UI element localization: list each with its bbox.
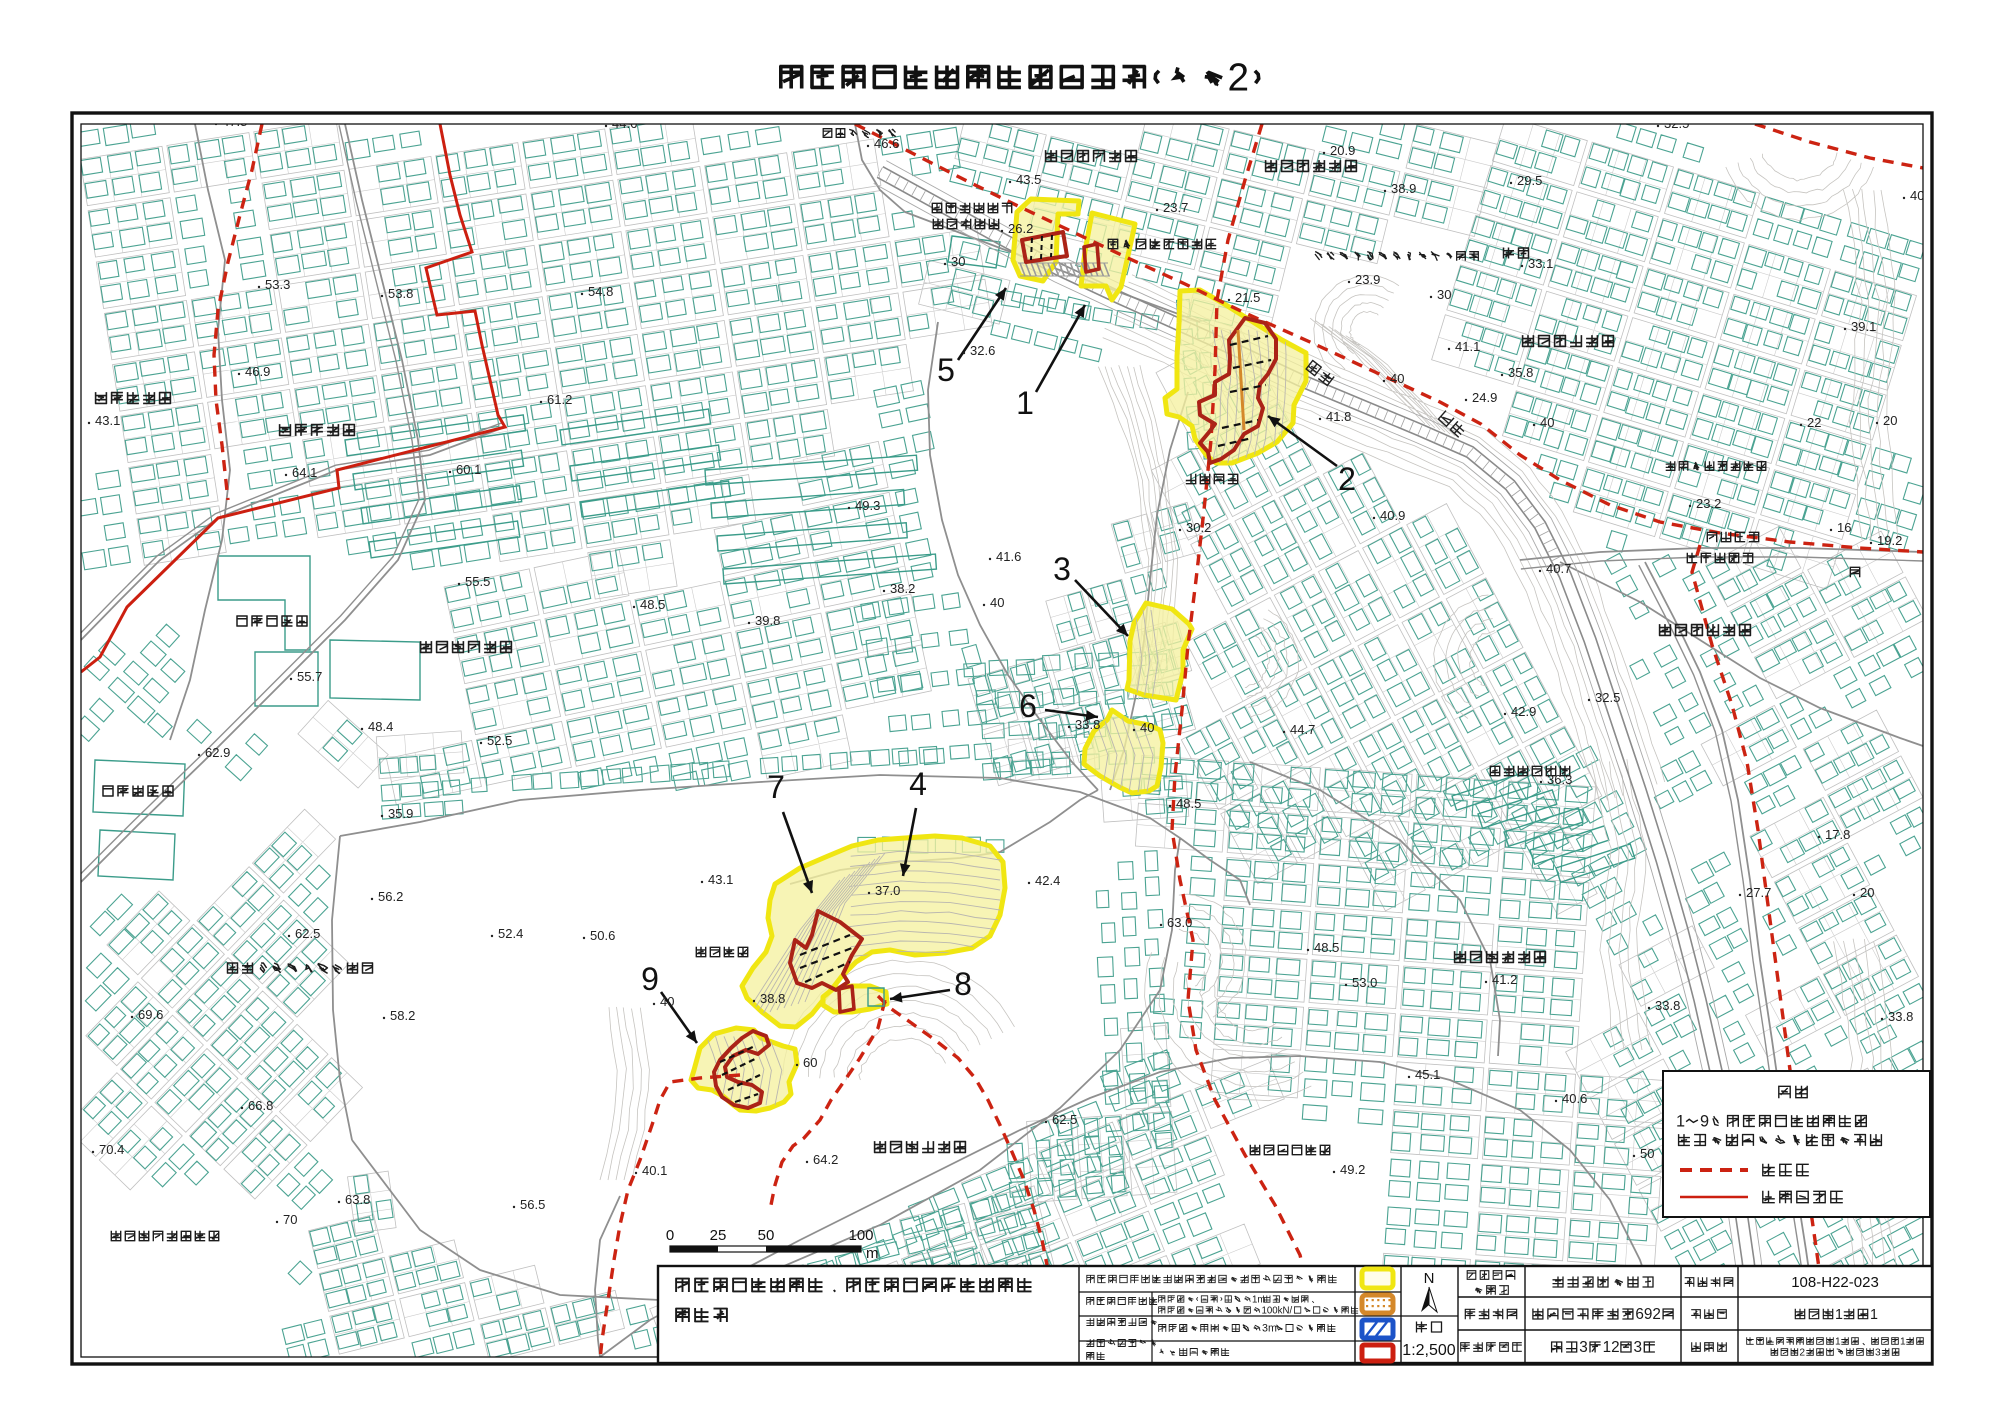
svg-text:52.4: 52.4 [498, 926, 523, 941]
svg-text:3: 3 [1579, 1339, 1588, 1356]
svg-text:43.5: 43.5 [1016, 172, 1041, 187]
svg-text:3: 3 [1053, 551, 1071, 587]
svg-text:40: 40 [1140, 720, 1154, 735]
svg-text:1: 1 [1676, 1113, 1685, 1131]
svg-text:42.9: 42.9 [1511, 704, 1536, 719]
svg-text:1: 1 [1016, 385, 1034, 421]
svg-text:23.7: 23.7 [1163, 200, 1188, 215]
svg-text:2: 2 [1799, 1348, 1805, 1359]
svg-text:38.8: 38.8 [760, 991, 785, 1006]
svg-text:2: 2 [1338, 461, 1356, 497]
svg-text:48.5: 48.5 [1176, 796, 1201, 811]
svg-text:1: 1 [1835, 1307, 1843, 1323]
svg-text:20.9: 20.9 [1330, 143, 1355, 158]
svg-text:35.9: 35.9 [388, 806, 413, 821]
svg-text:43.1: 43.1 [95, 413, 120, 428]
svg-text:70: 70 [283, 1212, 297, 1227]
svg-text:25: 25 [710, 1227, 727, 1244]
svg-text:1: 1 [1835, 1337, 1841, 1348]
svg-text:3: 3 [1634, 1339, 1643, 1356]
svg-text:29.5: 29.5 [1517, 173, 1542, 188]
svg-text:58.2: 58.2 [390, 1008, 415, 1023]
svg-text:52.5: 52.5 [487, 733, 512, 748]
svg-text:33.8: 33.8 [1655, 998, 1680, 1013]
svg-text:m: m [866, 1245, 879, 1262]
svg-text:37.0: 37.0 [875, 883, 900, 898]
svg-text:60.1: 60.1 [456, 462, 481, 477]
svg-text:38.2: 38.2 [890, 581, 915, 596]
svg-text:7: 7 [767, 769, 785, 805]
svg-text:36.3: 36.3 [1547, 772, 1572, 787]
svg-text:5: 5 [937, 352, 955, 388]
svg-text:1: 1 [1870, 1307, 1878, 1323]
svg-text:53.3: 53.3 [265, 277, 290, 292]
svg-text:39.8: 39.8 [755, 613, 780, 628]
svg-text:41.8: 41.8 [1326, 409, 1351, 424]
svg-text:53.8: 53.8 [388, 286, 413, 301]
svg-text:1:2,500: 1:2,500 [1402, 1342, 1455, 1359]
svg-text:21.5: 21.5 [1235, 290, 1260, 305]
svg-text:40.9: 40.9 [1380, 508, 1405, 523]
svg-text:49.3: 49.3 [855, 498, 880, 513]
svg-text:50: 50 [1640, 1146, 1654, 1161]
svg-text:32.6: 32.6 [970, 343, 995, 358]
svg-text:40.7: 40.7 [1546, 561, 1571, 576]
svg-text:100kN/: 100kN/ [1262, 1305, 1293, 1316]
svg-text:50.6: 50.6 [590, 928, 615, 943]
svg-text:41.2: 41.2 [1492, 972, 1517, 987]
svg-text:20: 20 [1860, 885, 1874, 900]
svg-text:40.6: 40.6 [1562, 1091, 1587, 1106]
svg-text:17.8: 17.8 [1825, 827, 1850, 842]
svg-text:3m: 3m [1262, 1323, 1277, 1335]
svg-text:6: 6 [1019, 688, 1037, 724]
svg-text:54.8: 54.8 [588, 284, 613, 299]
svg-text:26.2: 26.2 [1008, 221, 1033, 236]
svg-text:62.9: 62.9 [205, 745, 230, 760]
svg-text:48.5: 48.5 [640, 597, 665, 612]
svg-text:63.8: 63.8 [345, 1192, 370, 1207]
svg-text:24.9: 24.9 [1472, 390, 1497, 405]
svg-text:70.4: 70.4 [99, 1142, 124, 1157]
svg-text:46.9: 46.9 [245, 364, 270, 379]
svg-text:23.2: 23.2 [1696, 496, 1721, 511]
svg-text:30: 30 [951, 254, 965, 269]
svg-text:62.5: 62.5 [295, 926, 320, 941]
svg-text:1: 1 [1900, 1337, 1906, 1348]
svg-text:56.5: 56.5 [520, 1197, 545, 1212]
svg-text:62.5: 62.5 [1052, 1112, 1077, 1127]
svg-text:40: 40 [660, 994, 674, 1009]
svg-text:49.2: 49.2 [1340, 1162, 1365, 1177]
svg-text:N: N [1424, 1270, 1435, 1287]
svg-text:55.7: 55.7 [297, 669, 322, 684]
svg-text:19.2: 19.2 [1877, 533, 1902, 548]
svg-text:2: 2 [1228, 56, 1250, 99]
svg-text:33.8: 33.8 [1888, 1009, 1913, 1024]
svg-text:41.6: 41.6 [996, 549, 1021, 564]
svg-text:33.1: 33.1 [1528, 256, 1553, 271]
svg-text:8: 8 [954, 966, 972, 1002]
svg-text:60: 60 [803, 1055, 817, 1070]
svg-text:23.9: 23.9 [1355, 272, 1380, 287]
svg-text:45.1: 45.1 [1415, 1067, 1440, 1082]
svg-text:4: 4 [909, 766, 927, 802]
svg-text:3: 3 [1875, 1348, 1881, 1359]
svg-text:692: 692 [1635, 1306, 1661, 1323]
svg-text:38.9: 38.9 [1391, 181, 1416, 196]
svg-text:100: 100 [848, 1227, 873, 1244]
svg-text:53.0: 53.0 [1352, 975, 1377, 990]
svg-text:32.5: 32.5 [1595, 690, 1620, 705]
svg-text:22: 22 [1807, 415, 1821, 430]
svg-text:46.6: 46.6 [874, 136, 899, 151]
svg-text:50: 50 [758, 1227, 775, 1244]
svg-text:63.0: 63.0 [1167, 915, 1192, 930]
svg-text:40: 40 [990, 595, 1004, 610]
svg-text:30.2: 30.2 [1186, 520, 1211, 535]
svg-text:33.8: 33.8 [1075, 717, 1100, 732]
svg-text:40: 40 [1540, 415, 1554, 430]
svg-text:30: 30 [1437, 287, 1451, 302]
svg-text:44.7: 44.7 [1290, 722, 1315, 737]
svg-text:108-H22-023: 108-H22-023 [1791, 1274, 1879, 1291]
svg-text:61.2: 61.2 [547, 392, 572, 407]
svg-text:35.8: 35.8 [1508, 365, 1533, 380]
svg-text:48.4: 48.4 [368, 719, 393, 734]
svg-text:9: 9 [641, 961, 659, 997]
svg-text:64.2: 64.2 [813, 1152, 838, 1167]
svg-text:12: 12 [1603, 1339, 1620, 1356]
svg-text:69.6: 69.6 [138, 1007, 163, 1022]
svg-text:41.1: 41.1 [1455, 339, 1480, 354]
svg-text:40: 40 [1390, 371, 1404, 386]
svg-text:42.4: 42.4 [1035, 873, 1060, 888]
svg-text:64.1: 64.1 [292, 465, 317, 480]
svg-text:56.2: 56.2 [378, 889, 403, 904]
svg-text:9: 9 [1700, 1113, 1709, 1131]
svg-text:0: 0 [666, 1227, 674, 1244]
svg-text:39.1: 39.1 [1851, 319, 1876, 334]
svg-text:20: 20 [1883, 413, 1897, 428]
svg-text:40.1: 40.1 [642, 1163, 667, 1178]
svg-text:48.5: 48.5 [1314, 940, 1339, 955]
svg-text:55.5: 55.5 [465, 574, 490, 589]
svg-text:16: 16 [1837, 520, 1851, 535]
svg-text:43.1: 43.1 [708, 872, 733, 887]
svg-text:66.8: 66.8 [248, 1098, 273, 1113]
svg-text:27.7: 27.7 [1746, 885, 1771, 900]
